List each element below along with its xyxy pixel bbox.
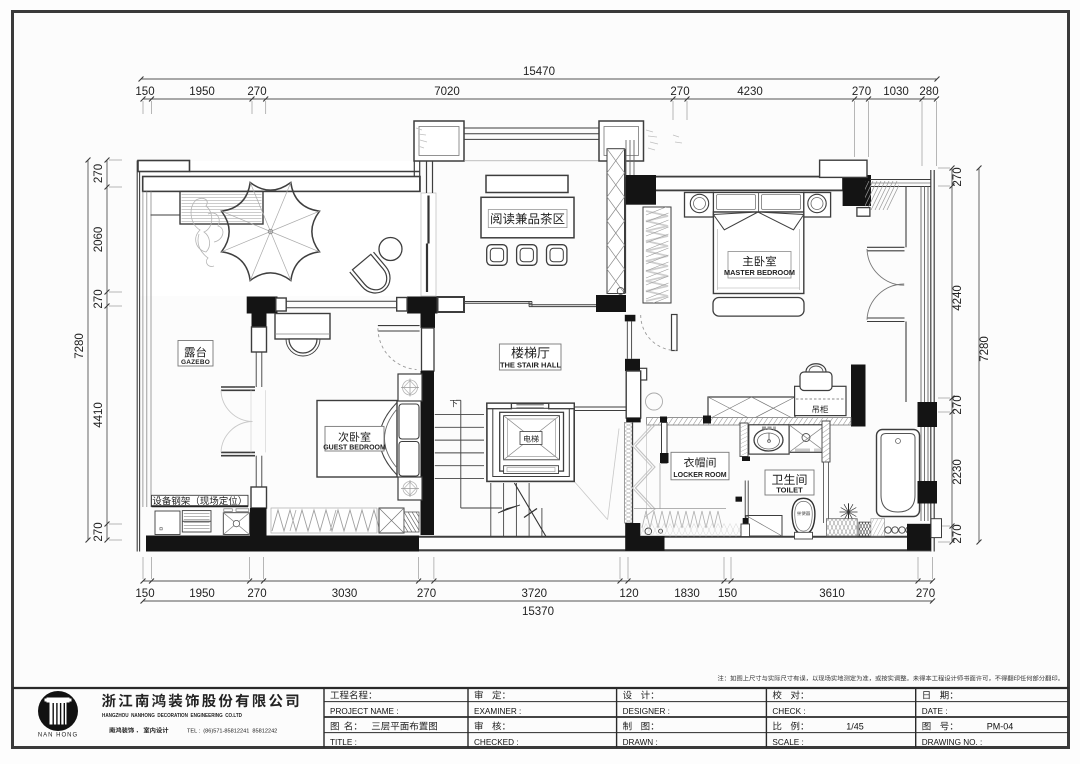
svg-text:4230: 4230 xyxy=(737,86,763,98)
svg-text:TEL : (86)571-85812241 85812: TEL : (86)571-85812241 85812242 xyxy=(187,729,277,735)
svg-text:15470: 15470 xyxy=(523,66,555,78)
svg-text:270: 270 xyxy=(247,86,266,98)
svg-text:1950: 1950 xyxy=(189,588,215,600)
svg-text:THE STAIR HALL: THE STAIR HALL xyxy=(500,360,562,369)
svg-text:270: 270 xyxy=(952,167,964,186)
svg-text:PROJECT NAME :: PROJECT NAME : xyxy=(330,707,399,716)
svg-text:PM-04: PM-04 xyxy=(987,722,1014,732)
svg-text:150: 150 xyxy=(718,588,737,600)
svg-text:15370: 15370 xyxy=(522,606,554,618)
svg-text:TITLE :: TITLE : xyxy=(330,738,357,747)
svg-text:2060: 2060 xyxy=(93,227,105,253)
svg-text:7020: 7020 xyxy=(434,86,460,98)
svg-text:2230: 2230 xyxy=(952,459,964,485)
svg-text:SCALE :: SCALE : xyxy=(772,738,803,747)
svg-text:DRAWN :: DRAWN : xyxy=(623,738,658,747)
svg-text:150: 150 xyxy=(135,588,154,600)
svg-text:3030: 3030 xyxy=(332,588,358,600)
svg-text:4240: 4240 xyxy=(952,285,964,311)
svg-text:1/45: 1/45 xyxy=(846,722,864,732)
svg-text:GAZEBO: GAZEBO xyxy=(181,359,210,366)
svg-text:EXAMINER :: EXAMINER : xyxy=(474,707,521,716)
svg-text:LOCKER ROOM: LOCKER ROOM xyxy=(673,472,726,479)
svg-text:270: 270 xyxy=(852,86,871,98)
svg-text:270: 270 xyxy=(952,524,964,543)
svg-text:120: 120 xyxy=(619,588,638,600)
svg-text:DATE :: DATE : xyxy=(922,707,948,716)
svg-text:HANGZHOU NANHONG DECORATION: HANGZHOU NANHONG DECORATION ENGINEERING … xyxy=(102,713,242,719)
svg-text:270: 270 xyxy=(93,289,105,308)
svg-text:MASTER BEDROOM: MASTER BEDROOM xyxy=(724,268,795,277)
svg-text:7280: 7280 xyxy=(979,336,991,362)
svg-text:NAN HONG: NAN HONG xyxy=(38,733,78,739)
svg-text:270: 270 xyxy=(417,588,436,600)
svg-text:TOILET: TOILET xyxy=(776,486,803,495)
svg-text:270: 270 xyxy=(93,164,105,183)
svg-text:1830: 1830 xyxy=(674,588,700,600)
svg-text:280: 280 xyxy=(919,86,938,98)
svg-text:3720: 3720 xyxy=(522,588,548,600)
svg-text:CHECK :: CHECK : xyxy=(772,707,805,716)
svg-text:GUEST BEDROOM: GUEST BEDROOM xyxy=(323,445,386,452)
svg-text:150: 150 xyxy=(135,86,154,98)
svg-text:DESIGNER :: DESIGNER : xyxy=(623,707,670,716)
svg-text:1030: 1030 xyxy=(883,86,909,98)
svg-text:270: 270 xyxy=(670,86,689,98)
svg-text:4410: 4410 xyxy=(93,402,105,428)
svg-text:3610: 3610 xyxy=(819,588,845,600)
svg-text:CHECKED :: CHECKED : xyxy=(474,738,519,747)
svg-text:270: 270 xyxy=(93,522,105,541)
svg-text:270: 270 xyxy=(952,395,964,414)
svg-text:270: 270 xyxy=(247,588,266,600)
svg-text:7280: 7280 xyxy=(74,333,86,359)
svg-text:1950: 1950 xyxy=(189,86,215,98)
svg-text:270: 270 xyxy=(916,588,935,600)
svg-text:DRAWING NO. :: DRAWING NO. : xyxy=(922,738,983,747)
